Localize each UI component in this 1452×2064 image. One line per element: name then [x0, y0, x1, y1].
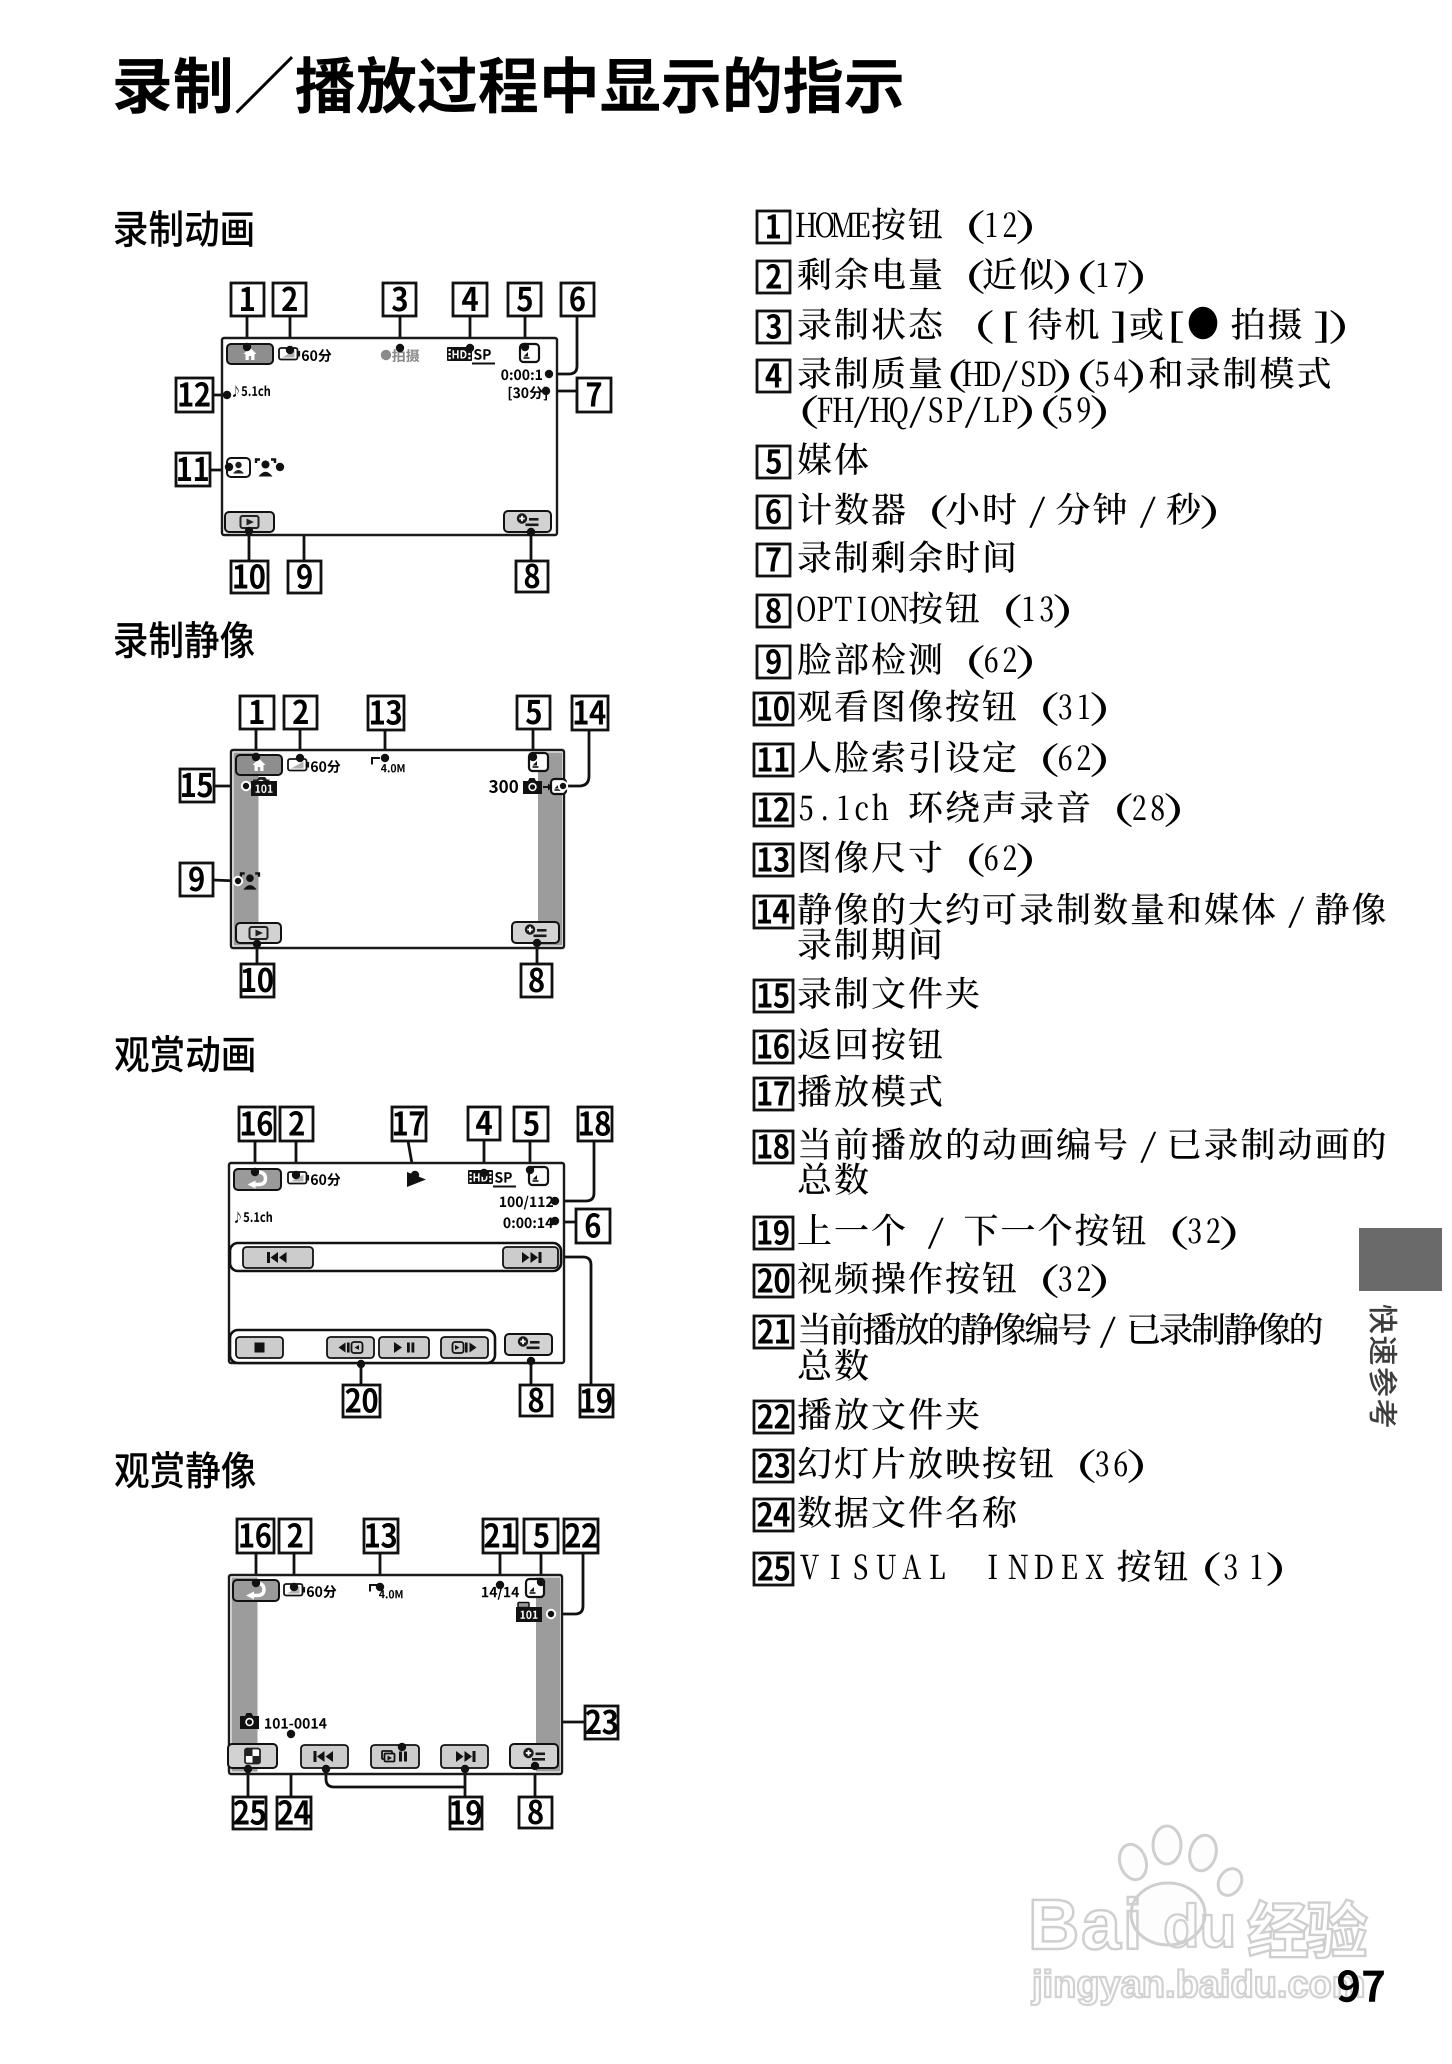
svg-text:jingyan.baidu.com: jingyan.baidu.com: [1031, 1964, 1366, 2006]
svg-text:du: du: [1163, 1893, 1236, 1960]
svg-text:Bai: Bai: [1028, 1886, 1145, 1965]
